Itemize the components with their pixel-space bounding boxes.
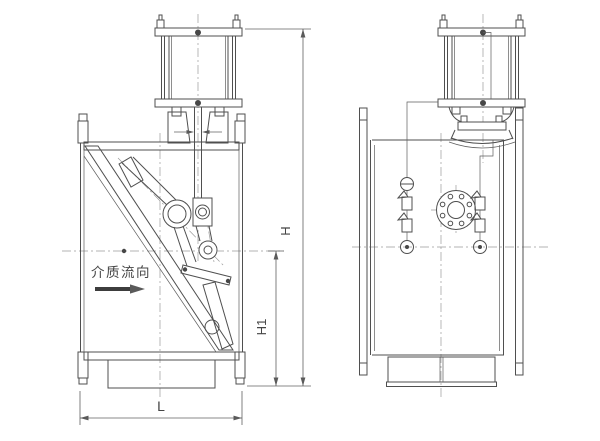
flange-bolt: [237, 114, 245, 121]
flange-bolt: [79, 114, 87, 121]
tie-rod-nut: [516, 20, 523, 28]
flow-direction-label: 介质流向: [91, 265, 151, 280]
front-internals: [84, 146, 233, 352]
cylinder-port-dot: [195, 30, 201, 36]
valve-technical-drawing: 介质流向: [0, 0, 600, 441]
flow-arrow-head: [130, 284, 145, 293]
air-pipe-top: [483, 33, 491, 100]
front-actuator-cylinder: [155, 15, 242, 107]
link-pin: [199, 241, 217, 259]
side-port-flange: [431, 185, 481, 235]
tie-rod-nut: [157, 20, 164, 28]
flange-bolt: [516, 108, 524, 120]
centerline-dot: [122, 249, 126, 253]
front-view: 介质流向: [62, 14, 284, 399]
dimension-l-label: L: [157, 398, 165, 414]
dimension-h-label: H: [278, 226, 293, 235]
hinge-pin: [163, 200, 191, 228]
flange-bolt: [79, 378, 87, 384]
flow-annotation: 介质流向: [91, 265, 151, 294]
drawing-canvas: 介质流向: [0, 0, 600, 441]
dimension-l: L: [80, 391, 242, 425]
flange-bolt: [360, 363, 368, 375]
flange-bolt: [236, 378, 244, 384]
body-bottom-wall: [84, 352, 239, 360]
side-air-line-left: [398, 102, 438, 254]
side-view: [352, 14, 551, 397]
side-bonnet: [449, 107, 515, 148]
cylinder-port-dot: [480, 100, 486, 106]
tie-rod-nut: [440, 20, 447, 28]
dimension-h1: H1: [254, 251, 284, 386]
base-pocket: [388, 357, 495, 382]
flange-bolt: [516, 363, 524, 375]
side-actuator-cylinder: [438, 15, 525, 107]
disc-hinge-boss: [205, 320, 219, 334]
cylinder-port-dot: [195, 100, 201, 106]
side-air-line-right: [471, 140, 493, 254]
tie-rod-nut: [233, 20, 240, 28]
flange-bolt: [360, 108, 368, 120]
dimension-h1-label: H1: [254, 319, 269, 336]
bottom-seat-pocket: [108, 360, 215, 388]
